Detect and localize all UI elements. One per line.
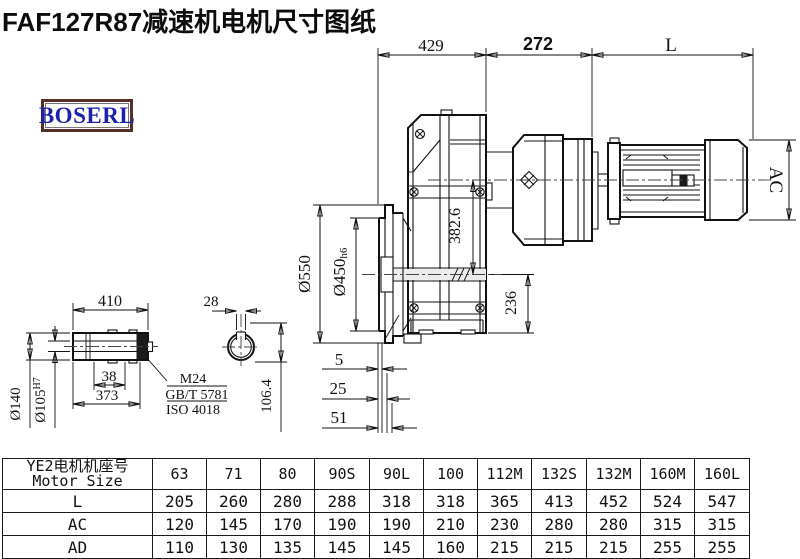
dim-450-tol: h6 — [338, 247, 350, 259]
cell: 135 — [261, 536, 315, 559]
col-90S: 90S — [315, 459, 370, 490]
table-header-en: Motor Size — [3, 474, 152, 489]
col-63: 63 — [153, 459, 207, 490]
cell: 452 — [587, 490, 641, 513]
col-160M: 160M — [641, 459, 695, 490]
cell: 190 — [370, 513, 424, 536]
dim-410: 410 — [98, 293, 122, 310]
flange-diameter-dims: Ø550 Ø450h6 — [295, 205, 390, 343]
cell: 145 — [207, 513, 261, 536]
cell: 260 — [207, 490, 261, 513]
dim-step-51: 51 — [331, 408, 348, 427]
cell: 120 — [153, 513, 207, 536]
dim-38: 38 — [102, 369, 117, 385]
dim-L: L — [665, 35, 677, 56]
cell: 318 — [424, 490, 478, 513]
dim-key-depth: 106.4 — [259, 379, 275, 413]
dim-step-25: 25 — [330, 379, 347, 398]
cell: 130 — [207, 536, 261, 559]
cell: 315 — [641, 513, 695, 536]
dim-105: Ø105 — [33, 389, 49, 422]
dim-373: 373 — [96, 388, 119, 404]
dim-shaft-od: Ø140 — [8, 387, 24, 420]
dim-450: Ø450 — [330, 259, 349, 297]
table-row-AC: AC 120 145 170 190 190 210 230 280 280 3… — [3, 513, 750, 536]
cell: 205 — [153, 490, 207, 513]
cell: 280 — [587, 513, 641, 536]
col-71: 71 — [207, 459, 261, 490]
col-132S: 132S — [532, 459, 587, 490]
dim-272: 272 — [523, 34, 553, 54]
gearbox-housing — [393, 110, 486, 334]
callout-thread: M24 — [180, 372, 206, 387]
cell: 110 — [153, 536, 207, 559]
cell: 280 — [261, 490, 315, 513]
motor-diameter-dim: AC — [749, 140, 796, 220]
row-label-L: L — [3, 490, 153, 513]
cell: 230 — [478, 513, 532, 536]
axis-to-bottom-dim: 236 — [488, 275, 534, 334]
dim-429: 429 — [418, 36, 444, 55]
cell: 145 — [370, 536, 424, 559]
cell: 190 — [315, 513, 370, 536]
row-label-AC: AC — [3, 513, 153, 536]
hollow-shaft-detail: 410 Ø140 Ø105H7 38 373 M24 GB/T 5781 ISO… — [8, 293, 229, 428]
dim-105-tol: H7 — [32, 377, 43, 389]
dim-flange-spigot: Ø450h6 — [330, 247, 350, 296]
cell: 215 — [532, 536, 587, 559]
cell: 413 — [532, 490, 587, 513]
dim-step-5: 5 — [335, 350, 344, 369]
cell: 215 — [478, 536, 532, 559]
callout-standard1: GB/T 5781 — [165, 388, 228, 403]
dim-flange-od: Ø550 — [295, 255, 314, 293]
cell: 170 — [261, 513, 315, 536]
motor — [608, 138, 747, 224]
dim-236: 236 — [503, 291, 520, 315]
cell: 547 — [695, 490, 750, 513]
row-label-AD: AD — [3, 536, 153, 559]
axis-distance-dim: 382.6 — [447, 181, 473, 275]
col-100: 100 — [424, 459, 478, 490]
cell: 215 — [587, 536, 641, 559]
callout-standard2: ISO 4018 — [166, 403, 220, 418]
cell: 145 — [315, 536, 370, 559]
cell: 288 — [315, 490, 370, 513]
col-160L: 160L — [695, 459, 750, 490]
cell: 255 — [641, 536, 695, 559]
cell: 210 — [424, 513, 478, 536]
cell: 524 — [641, 490, 695, 513]
col-132M: 132M — [587, 459, 641, 490]
dim-AC: AC — [765, 167, 786, 193]
motor-size-table: YE2电机机座号 Motor Size 63 71 80 90S 90L 100… — [2, 458, 750, 559]
cell: 255 — [695, 536, 750, 559]
input-adapter — [486, 135, 608, 245]
table-header-row: YE2电机机座号 Motor Size 63 71 80 90S 90L 100… — [3, 459, 750, 490]
dimension-top-chain: 429 272 L — [378, 34, 753, 204]
dim-382-6: 382.6 — [447, 208, 464, 244]
col-90L: 90L — [370, 459, 424, 490]
cell: 318 — [370, 490, 424, 513]
dim-key-width: 28 — [204, 294, 219, 310]
table-row-L: L 205 260 280 288 318 318 365 413 452 52… — [3, 490, 750, 513]
cell: 315 — [695, 513, 750, 536]
flange-step-dims: 5 25 51 — [322, 343, 417, 433]
cell: 160 — [424, 536, 478, 559]
cell: 365 — [478, 490, 532, 513]
col-112M: 112M — [478, 459, 532, 490]
table-header-motor-size: YE2电机机座号 Motor Size — [3, 459, 153, 490]
dim-shaft-bore: Ø105H7 — [32, 377, 49, 423]
cell: 280 — [532, 513, 587, 536]
col-80: 80 — [261, 459, 315, 490]
table-row-AD: AD 110 130 135 145 145 160 215 215 215 2… — [3, 536, 750, 559]
